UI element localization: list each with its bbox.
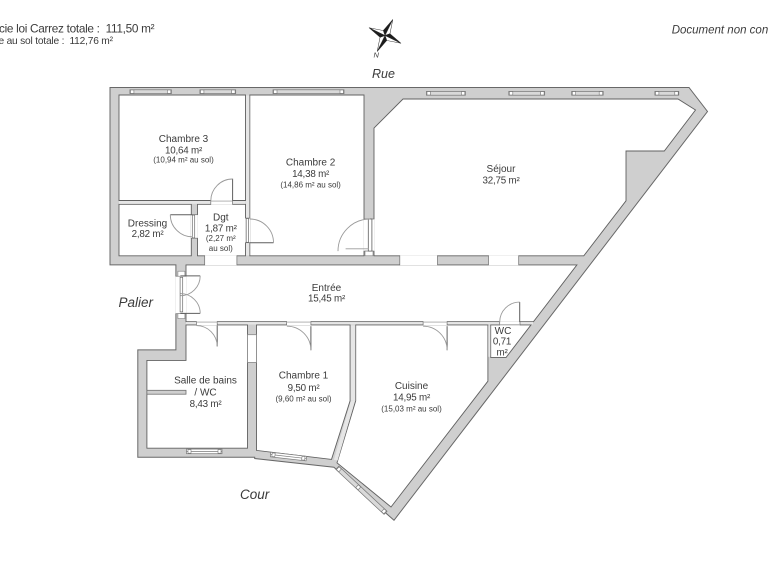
svg-text:Chambre 3: Chambre 3 [159, 134, 209, 145]
svg-text:Cour: Cour [240, 487, 270, 502]
svg-text:/ WC: / WC [194, 388, 216, 399]
svg-text:(14,86 m² au sol): (14,86 m² au sol) [280, 181, 341, 190]
svg-text:1,87 m²: 1,87 m² [205, 224, 238, 235]
svg-text:Entrée: Entrée [312, 283, 342, 294]
svg-text:cie loi Carrez totale : 111,5: cie loi Carrez totale : 111,50 m² [0, 22, 155, 36]
svg-text:9,50 m²: 9,50 m² [288, 383, 321, 394]
svg-text:0,71: 0,71 [493, 337, 511, 348]
svg-text:Document non contractuel: Document non contractuel [672, 24, 768, 36]
svg-text:Chambre 2: Chambre 2 [286, 158, 336, 169]
svg-text:m²: m² [496, 348, 508, 359]
svg-text:Salle de bains: Salle de bains [174, 376, 237, 387]
svg-text:2,82 m²: 2,82 m² [132, 229, 165, 240]
svg-text:14,38 m²: 14,38 m² [292, 169, 330, 180]
svg-text:14,95 m²: 14,95 m² [393, 393, 431, 404]
svg-text:Dressing: Dressing [128, 219, 167, 230]
svg-text:Rue: Rue [372, 67, 395, 81]
svg-text:32,75 m²: 32,75 m² [482, 176, 520, 187]
svg-text:Cuisine: Cuisine [395, 381, 429, 392]
svg-text:(10,94 m² au sol): (10,94 m² au sol) [153, 156, 214, 165]
svg-text:15,45 m²: 15,45 m² [308, 294, 346, 305]
svg-text:Séjour: Séjour [487, 164, 517, 175]
svg-text:(15,03 m² au sol): (15,03 m² au sol) [381, 405, 442, 414]
svg-text:N: N [374, 51, 380, 60]
svg-text:Chambre 1: Chambre 1 [279, 371, 329, 382]
svg-text:au sol): au sol) [209, 244, 233, 253]
svg-text:Dgt: Dgt [213, 213, 229, 224]
svg-text:WC: WC [495, 326, 512, 337]
svg-text:(2,27 m²: (2,27 m² [206, 234, 236, 243]
svg-text:(9,60 m² au sol): (9,60 m² au sol) [275, 395, 331, 404]
svg-text:e au sol totale : 112,76 m²: e au sol totale : 112,76 m² [0, 36, 114, 47]
svg-text:8,43 m²: 8,43 m² [190, 399, 223, 410]
svg-text:Palier: Palier [119, 295, 154, 310]
